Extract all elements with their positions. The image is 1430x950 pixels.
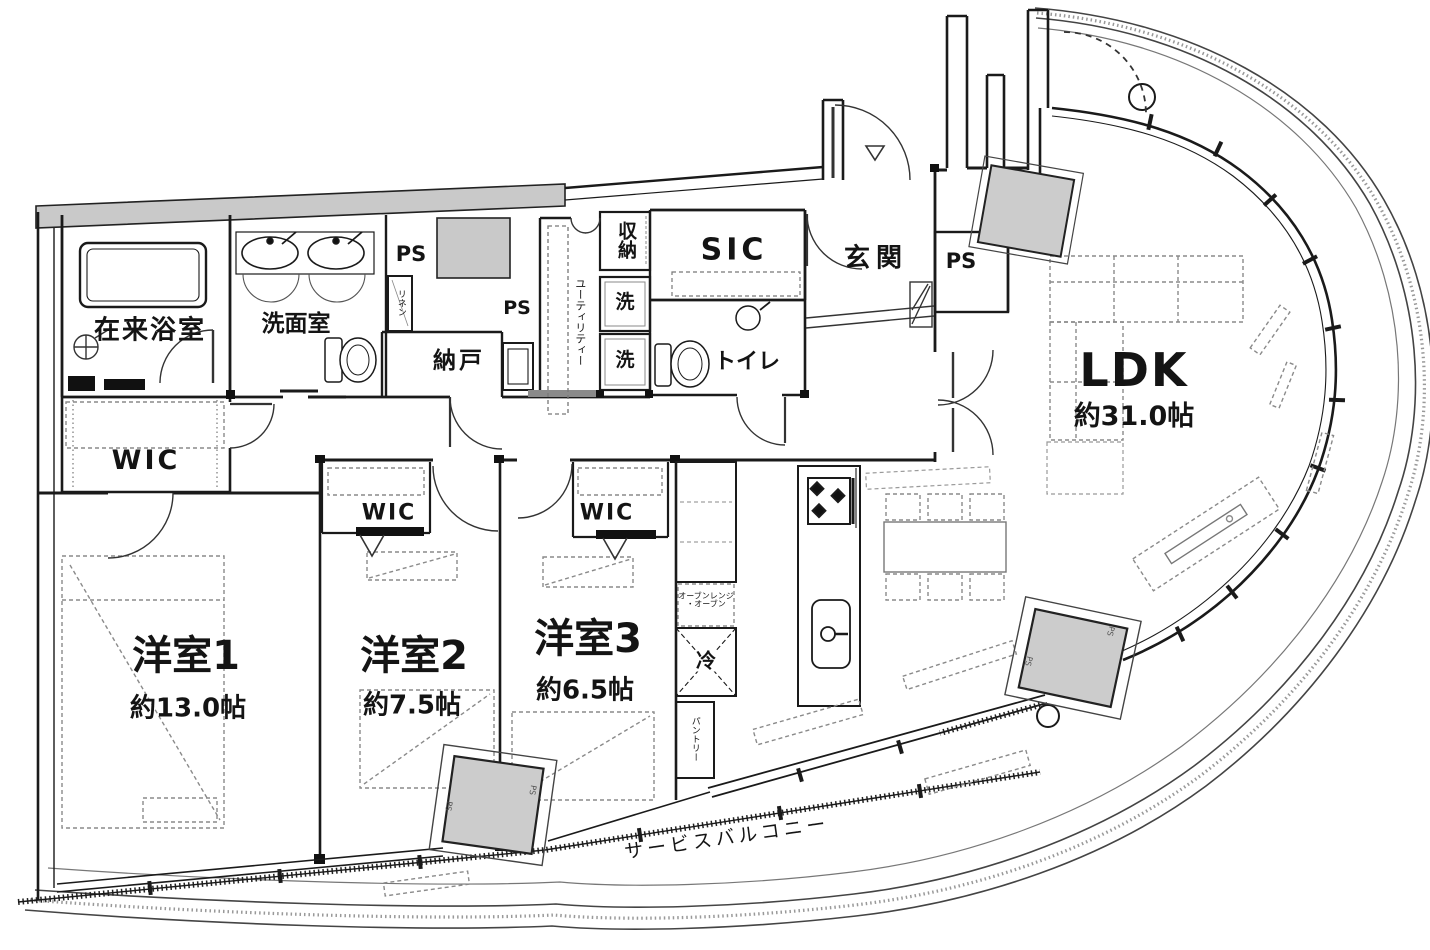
pillar-3-entrance: [969, 156, 1083, 264]
label-ps-pillar2-a: PS: [1023, 655, 1034, 667]
label-bedroom1: 洋室1: [132, 635, 240, 677]
label-storage-room: 納戸: [433, 349, 485, 373]
bathtub: [80, 243, 206, 307]
label-refrigerator: 冷: [694, 651, 718, 672]
floor-plan: 在来浴室 洗面室 納戸 収納 洗 洗 SIC トイレ 玄関 PS PS PS L…: [0, 0, 1430, 950]
stove: [808, 478, 853, 524]
label-ps-pillar1-b: PS: [527, 784, 537, 795]
kitchen-sink: [812, 600, 850, 668]
washroom-sliding-door: [280, 391, 346, 397]
label-entrance: 玄関: [844, 245, 908, 272]
label-ps-pillar2-b: PS: [1105, 625, 1116, 637]
label-ldk: LDK: [1079, 346, 1188, 394]
label-wic-left: WIC: [112, 447, 181, 475]
label-utility: ユーティリティー: [574, 278, 586, 366]
floor-plan-drawing: [0, 0, 1430, 950]
pipe-space-shafts: [437, 218, 510, 278]
kitchen-island-dash: [866, 442, 1123, 494]
label-bedroom3: 洋室3: [534, 618, 642, 660]
label-oven-range-line2: ・オーブン: [686, 600, 726, 609]
washroom-toilet: [325, 338, 376, 382]
dining-set: [884, 494, 1006, 600]
entrance-marker: [866, 146, 884, 160]
label-shoe-closet: SIC: [701, 234, 768, 266]
top-wall-band: [36, 167, 823, 228]
sic-shelves: [672, 272, 800, 296]
label-ps-3: PS: [946, 250, 977, 272]
label-ps-pillar1-a: PS: [443, 800, 453, 811]
label-washer-2: 洗: [615, 351, 634, 371]
label-linen: リネン: [395, 290, 404, 317]
window-curve: [57, 108, 1336, 892]
washbasins: [236, 232, 374, 302]
dresser-bed3: [543, 557, 633, 587]
label-washer-1: 洗: [615, 293, 634, 313]
label-bedroom1-size: 約13.0帖: [130, 695, 246, 722]
label-bedroom2: 洋室2: [360, 635, 468, 677]
label-ps-1: PS: [396, 243, 427, 265]
label-oven-range: オーブンレンジ ・オーブン: [678, 593, 734, 610]
dresser-bed2: [367, 552, 457, 580]
label-toilet: トイレ: [714, 350, 780, 373]
label-closet: 収納: [615, 221, 635, 259]
label-ldk-size: 約31.0帖: [1074, 403, 1195, 431]
label-pantry: パントリー: [689, 717, 698, 762]
label-ps-2: PS: [503, 299, 531, 319]
label-bath: 在来浴室: [94, 317, 206, 344]
label-washroom: 洗面室: [262, 312, 331, 336]
bed-1: [62, 556, 224, 828]
entrance-porch-walls: [823, 10, 1048, 180]
tv-board: [1133, 477, 1279, 591]
pillars: [429, 156, 1141, 865]
shoe-cabinet: [910, 282, 932, 327]
label-bedroom2-size: 約7.5帖: [363, 692, 461, 719]
label-wic-2: WIC: [362, 501, 417, 524]
label-wic-3: WIC: [580, 501, 635, 524]
label-bedroom3-size: 約6.5帖: [536, 677, 634, 704]
utility-counter: [548, 226, 568, 414]
